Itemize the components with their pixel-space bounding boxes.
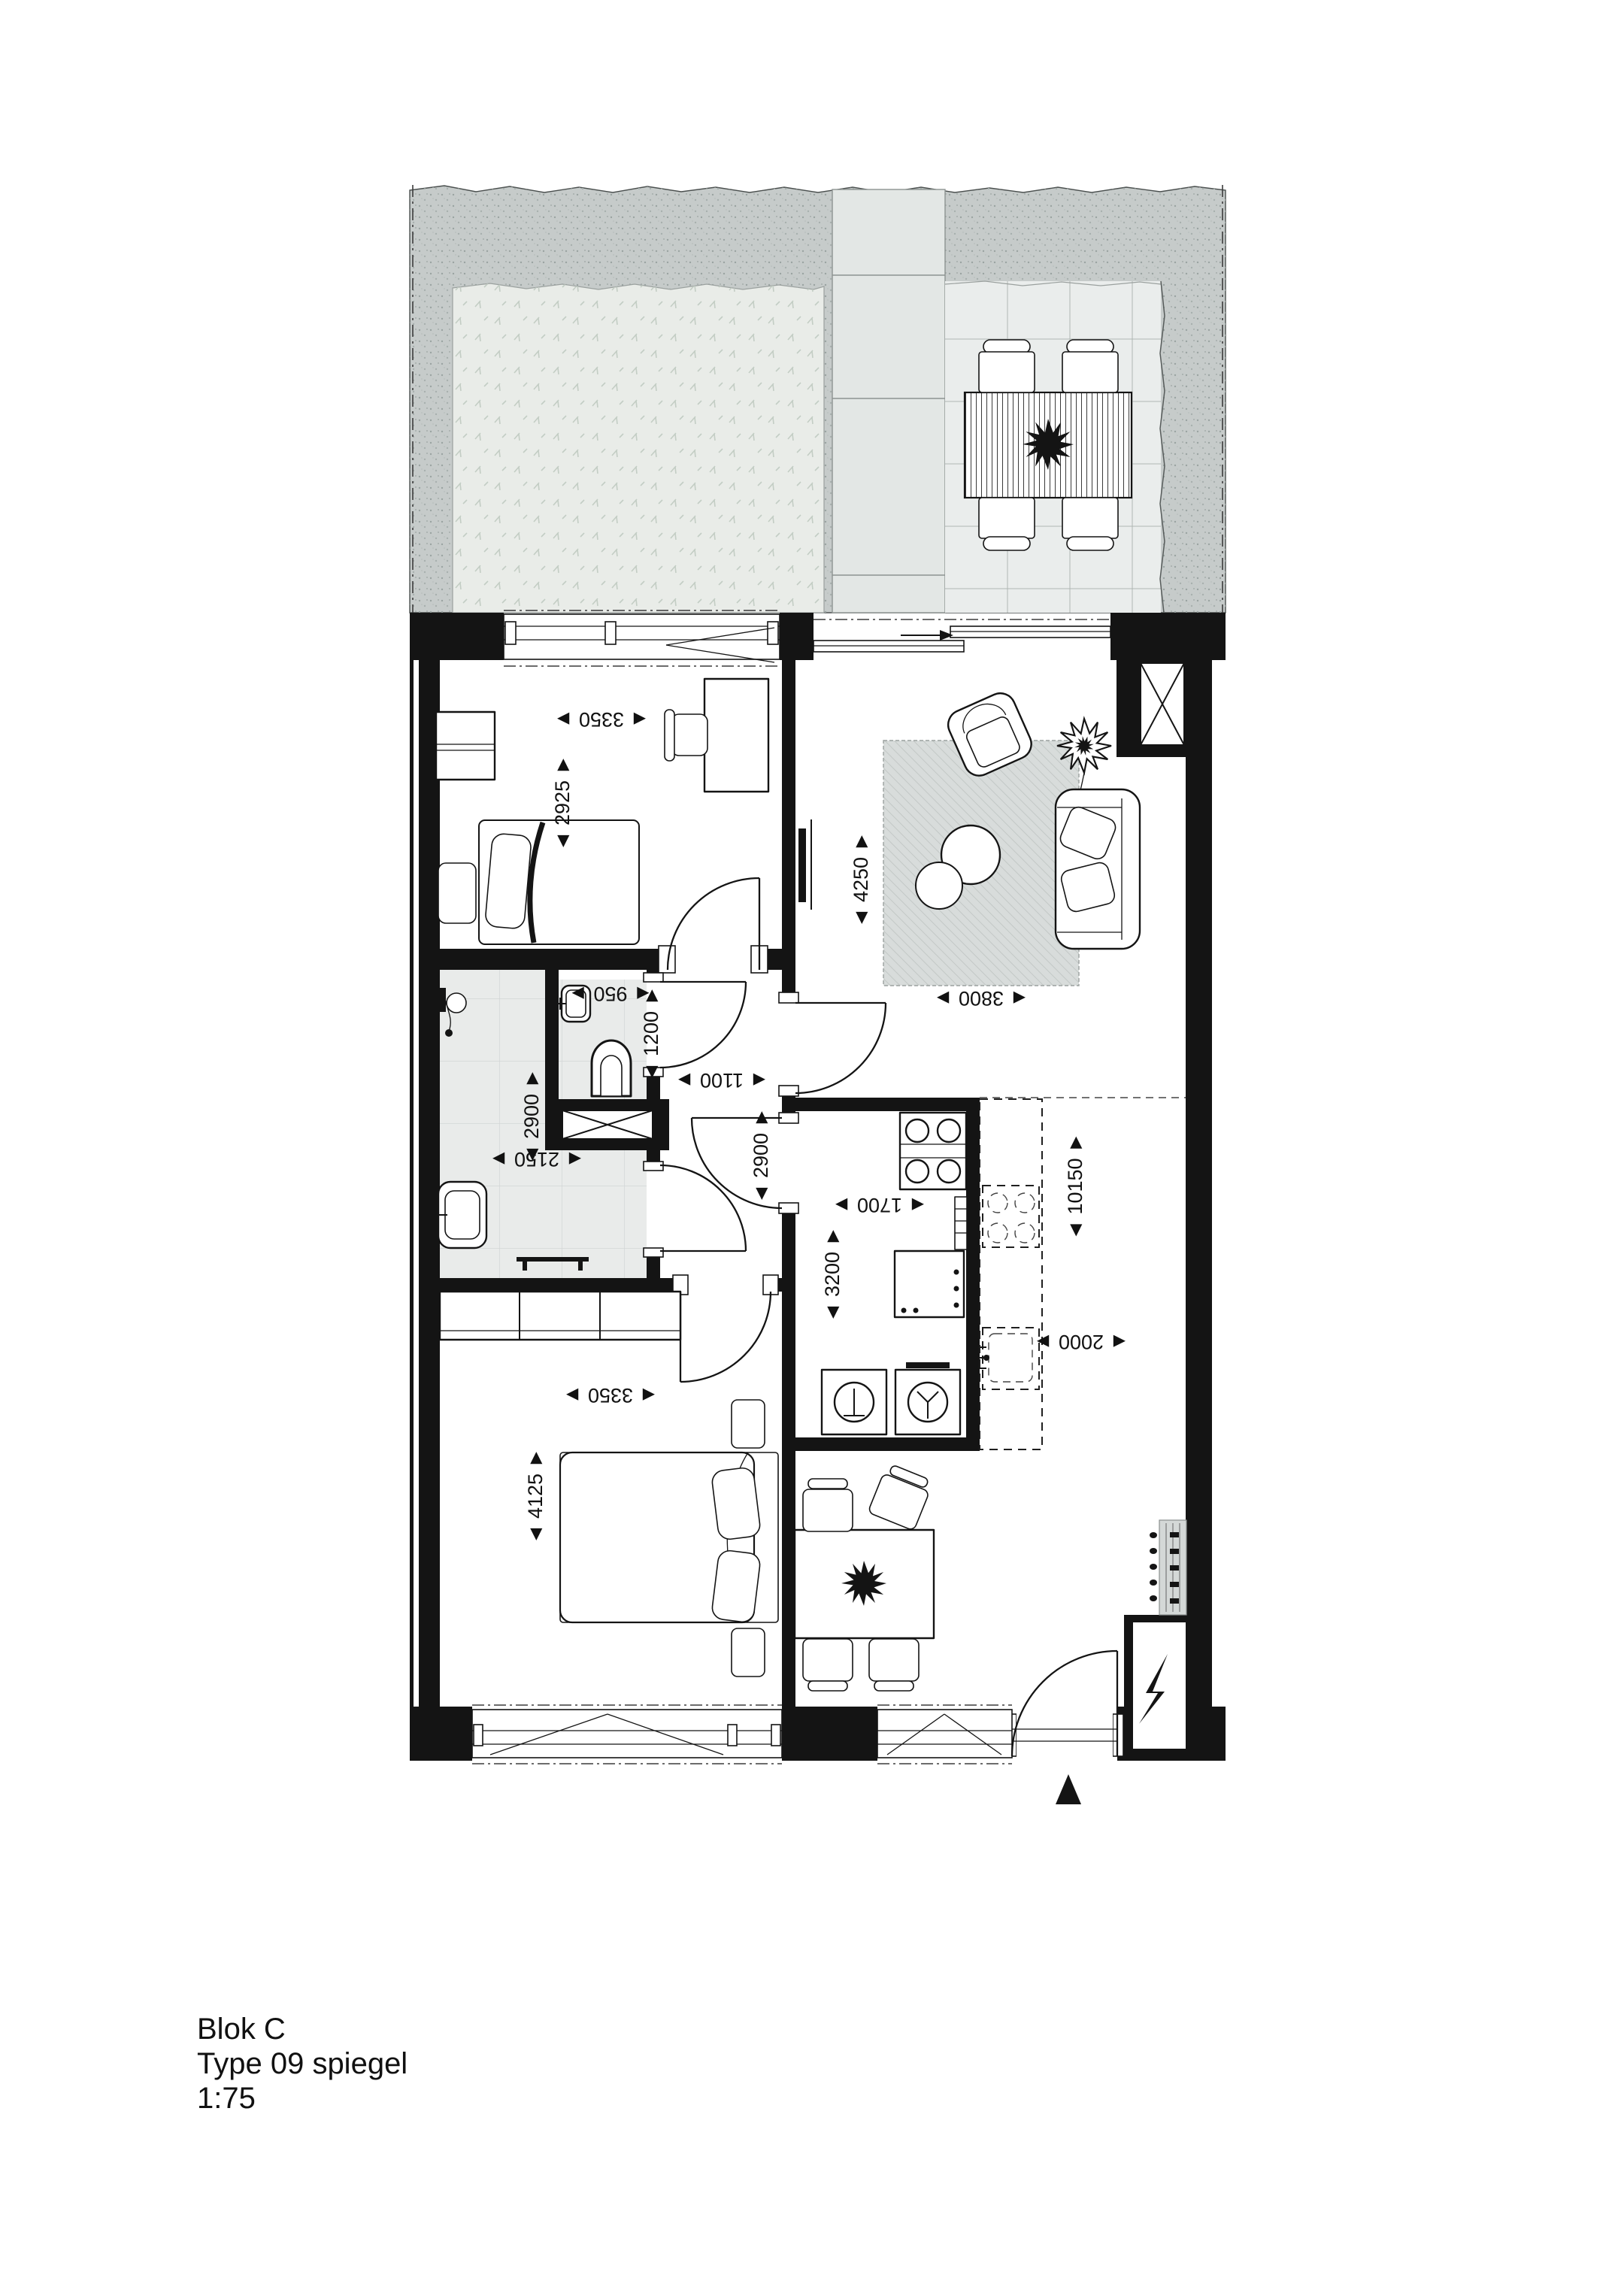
- dining-set: [795, 1463, 934, 1691]
- coffee-table-small: [916, 862, 962, 909]
- dining-chair: [868, 1463, 934, 1531]
- outdoor-dining-table: [965, 392, 1132, 498]
- title-project: Blok C: [197, 2013, 286, 2046]
- ventilation-grille: [1150, 1520, 1186, 1615]
- kitchen-hob-dashed: [983, 1186, 1039, 1247]
- meter-cabinet: [1124, 1615, 1186, 1756]
- dim-bathroom-width: ◄ 2150 ►: [489, 1148, 586, 1171]
- washbasin: [429, 1182, 486, 1248]
- stove: [900, 1113, 966, 1189]
- hall-window: [877, 1705, 1012, 1764]
- dim-bedroom2-width: ◄ 3350 ►: [562, 1384, 659, 1407]
- entrance-marker-icon: [1056, 1774, 1081, 1804]
- utility-north-wall: [795, 1098, 980, 1111]
- bedroom1-window: [504, 610, 780, 666]
- dim-hall-depth: ◄ 2900 ►: [750, 1107, 772, 1204]
- outdoor-chair: [979, 498, 1035, 550]
- outdoor-chair: [1062, 340, 1118, 392]
- desk-chair: [665, 710, 707, 761]
- dim-wc-depth: ◄ 1200 ►: [640, 986, 662, 1083]
- bedroom1-door: [668, 878, 759, 970]
- outdoor-chair: [1062, 498, 1118, 550]
- bathroom-door: [660, 1165, 746, 1251]
- entry-threshold: [1012, 1708, 1117, 1759]
- dim-dining-width: ◄ 2000 ►: [1033, 1331, 1130, 1353]
- floorplan-page: ◄ 3350 ► ◄ 2925 ► ◄ 950 ► ◄ 1200 ► ◄ 110…: [0, 0, 1624, 2296]
- terrace-sliding-door: [814, 619, 1110, 652]
- title-unit-type: Type 09 spiegel: [197, 2047, 408, 2080]
- dim-bedroom2-depth: ◄ 4125 ►: [524, 1448, 547, 1545]
- dining-chair: [803, 1479, 853, 1531]
- party-wall-left: [419, 613, 440, 1761]
- bedroom2-north-wall: [440, 1278, 680, 1292]
- dim-hall-width: ◄ 1100 ►: [674, 1069, 770, 1092]
- wall-panel: [955, 1197, 967, 1249]
- kitchen-sink-dashed: [980, 1328, 1039, 1389]
- dining-chair: [803, 1639, 853, 1691]
- bottom-wall-mid-segment: [782, 1707, 877, 1761]
- dim-bedroom1-depth: ◄ 2925 ►: [551, 755, 574, 852]
- bath-wc-divider-wall: [545, 970, 559, 1099]
- shaft-bathroom: [545, 1099, 669, 1150]
- washing-machine: [822, 1370, 886, 1434]
- outdoor-chair: [979, 340, 1035, 392]
- dim-utility-width: ◄ 1700 ►: [832, 1194, 929, 1216]
- dim-utility-depth: ◄ 3200 ►: [821, 1226, 844, 1323]
- dishwasher: [895, 1251, 964, 1317]
- dryer: [895, 1362, 960, 1434]
- nightstand: [438, 863, 476, 923]
- party-wall-left-outer-leaf: [410, 613, 414, 1761]
- top-wall-mid-segment: [780, 613, 814, 660]
- desk: [704, 679, 768, 792]
- dim-bedroom1-width: ◄ 3350 ►: [553, 708, 650, 731]
- living-hall-wall: [782, 660, 795, 1003]
- bedroom1-south-wall: [440, 949, 668, 970]
- wardrobe-row: [440, 1292, 680, 1340]
- dim-living-depth: ◄ 4250 ►: [850, 831, 872, 928]
- dim-total-depth: ◄ 10150 ►: [1064, 1132, 1086, 1240]
- tv: [798, 819, 811, 910]
- dim-living-width: ◄ 3800 ►: [933, 987, 1030, 1010]
- dining-chair: [869, 1639, 919, 1691]
- bottom-wall-left-segment: [410, 1707, 472, 1761]
- concrete-slab-path: [832, 189, 945, 613]
- bedroom2-window: [472, 1705, 782, 1764]
- right-wall: [1186, 613, 1212, 1761]
- title-scale: 1:75: [197, 2082, 256, 2115]
- bedroom2-door: [680, 1292, 771, 1382]
- sofa: [1056, 789, 1140, 949]
- nightstand: [732, 1628, 765, 1677]
- utility-east-wall: [966, 1098, 980, 1451]
- utility-south-wall: [795, 1437, 980, 1451]
- bedroom2-furniture: [440, 1292, 778, 1677]
- nightstand: [732, 1400, 765, 1448]
- wc-door: [660, 982, 746, 1068]
- double-bed: [560, 1452, 778, 1623]
- shaft-living-room: [1116, 659, 1212, 757]
- toilet: [592, 1040, 631, 1096]
- title-block: Blok C Type 09 spiegel 1:75: [197, 2013, 408, 2115]
- living-room-door: [795, 1003, 886, 1093]
- wardrobe: [436, 712, 495, 780]
- terrace-zone: [410, 185, 1226, 613]
- top-wall-left-segment: [410, 613, 504, 660]
